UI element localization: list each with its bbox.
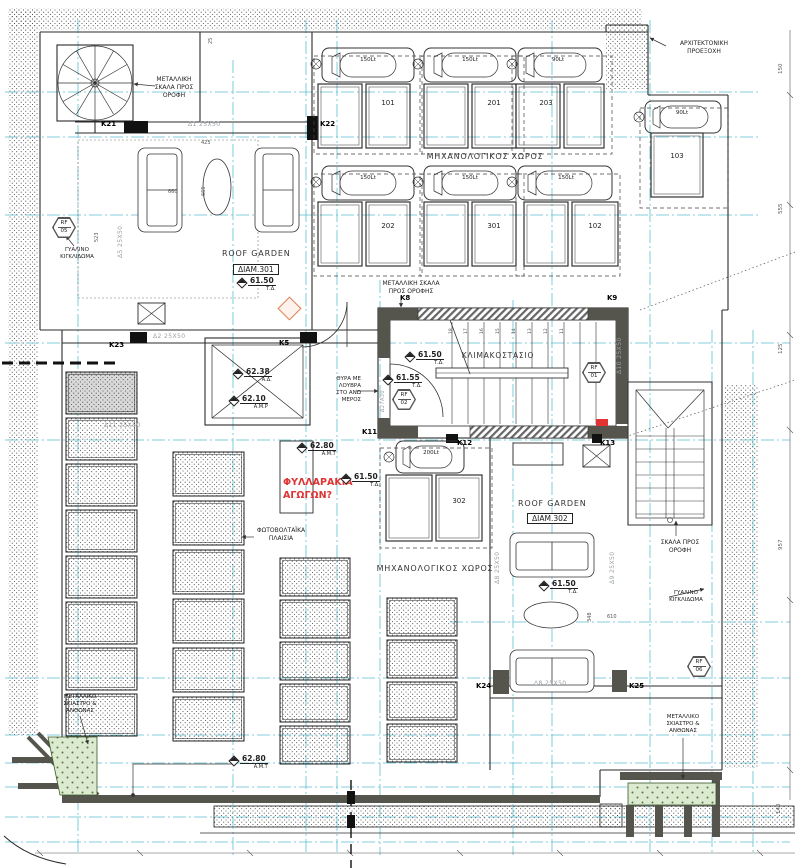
shade-planter-left-note: ΜΕΤΑΛΛΙΚΟ ΣΚΙΑΣΤΡΟ & ΑΝΘΩΝΑΣ [54, 694, 106, 715]
beam-d27: Δ27Α30 [380, 390, 386, 412]
dim-523: 523 [94, 232, 100, 242]
metal-stair-mid-note: ΜΕΤΑΛΛΙΚΗ ΣΚΑΛΑ ΠΡΟΣ ΟΡΟΦΗΣ [378, 280, 444, 296]
panel-101: 101 [368, 99, 408, 108]
panel-102: 102 [575, 222, 615, 231]
pv-panels-note: ΦΩΤΟΒΟΛΤΑΪΚΑ ΠΛΑΙΣΙΑ [250, 527, 312, 543]
level-icon [296, 442, 307, 453]
apartment-301-tag: ΔΙΑΜ.301 [233, 264, 279, 275]
dim-665: 665 [201, 186, 207, 196]
planters [48, 737, 716, 805]
dim-425: 425 [201, 140, 211, 146]
level-icon [404, 351, 415, 362]
dim-140: 140 [776, 804, 782, 815]
spiral-staircase [58, 46, 132, 120]
beam-d9: Δ9 25X50 [609, 552, 616, 584]
stairwell-label: ΚΛΙΜΑΚΟΣΤΑΣΙΟ [460, 351, 536, 361]
column-k5: K5 [279, 339, 289, 347]
metal-stair-note: ΜΕΤΑΛΛΙΚΗ ΣΚΑΛΑ ΠΡΟΣ ΟΡΟΦΗ [150, 76, 198, 99]
column-k11: K11 [362, 428, 377, 436]
room-mech-bottom: ΜΗΧΑΝΟΛΟΓΙΚΟΣ ΧΩΡΟΣ [360, 564, 510, 574]
column-k9: K9 [607, 294, 617, 302]
level-icon [228, 755, 239, 766]
tread-number: 14 [512, 328, 517, 334]
dim-125: 125 [778, 344, 784, 355]
dim-348: 348 [587, 612, 593, 622]
tread-number: 15 [496, 328, 501, 334]
panel-201: 201 [474, 99, 514, 108]
beam-d2: Δ2 25X50 [153, 333, 185, 340]
tread-number: 18 [449, 328, 454, 334]
elevation-62-80-duct: 62.80Α.Μ.Τ [298, 441, 336, 457]
tank-150lt-202: 150Lt [348, 175, 388, 182]
shade-planter-right-note: ΜΕΤΑΛΛΙΚΟ ΣΚΙΑΣΤΡΟ & ΑΝΘΩΝΑΣ [657, 714, 709, 735]
panel-103: 103 [657, 152, 697, 161]
dim-555: 555 [778, 204, 784, 215]
tank-150lt-201: 150Lt [450, 57, 490, 64]
level-icon [232, 368, 243, 379]
roof-garden-301-label: ROOF GARDEN [222, 249, 284, 259]
elevation-61-50-garden301: 61.50Τ.Δ. [238, 276, 276, 292]
elevation-62-10-skylight: 62.10Α.Μ.Ρ [230, 394, 268, 410]
tread-number: 13 [528, 328, 533, 334]
elevation-61-50-stairwell: 61.50Τ.Δ. [406, 350, 444, 366]
level-icon [382, 374, 393, 385]
panel-203: 203 [526, 99, 566, 108]
dim-25: 25 [208, 38, 214, 44]
level-icon [236, 277, 247, 288]
column-k21: K21 [101, 120, 116, 128]
dim-150: 150 [778, 64, 784, 75]
tank-150lt-101: 150Lt [348, 57, 388, 64]
tank-150lt-301: 150Lt [450, 175, 490, 182]
plan-linework [0, 0, 797, 868]
level-icon [228, 395, 239, 406]
elevation-61-50-garden302: 61.50Τ.Δ. [540, 579, 578, 595]
beam-d10: Δ10 25X50 [616, 337, 623, 374]
tread-number: 17 [464, 328, 469, 334]
roof-plan-drawing: ΜΕΤΑΛΛΙΚΗ ΣΚΑΛΑ ΠΡΟΣ ΟΡΟΦΗ K21 Δ1 25X50 … [0, 0, 797, 868]
external-metal-stair [628, 382, 712, 525]
stair-to-roof-note: ΣΚΑΛΑ ΠΡΟΣ ΟΡΟΦΗ [653, 539, 707, 555]
dim-957: 957 [778, 540, 784, 551]
dim-610: 610 [607, 614, 617, 620]
panel-302: 302 [439, 497, 479, 506]
beam-d1: Δ1 25X50 [188, 121, 220, 128]
tank-90lt-203: 90Lt [538, 57, 578, 64]
panel-301: 301 [474, 222, 514, 231]
tread-number: 16 [480, 328, 485, 334]
glass-railing-left-note: ΓΥΑΛΙΝΟ ΚΙΓΚΛΙΔΩΜΑ [54, 247, 100, 261]
arch-projection-note: ΑΡΧΙΤΕΚΤΟΝΙΚΗ ΠΡΟΕΞΟΧΗ [664, 40, 744, 56]
room-mech-top: ΜΗΧΑΝΟΛΟΓΙΚΟΣ ΧΩΡΟΣ [410, 152, 560, 162]
level-icon [340, 473, 351, 484]
beam-d5: Δ5 25X50 [117, 226, 124, 258]
stairwell-treads [390, 320, 596, 424]
column-k8: K8 [400, 294, 410, 302]
tread-number: 12 [544, 328, 549, 334]
column-k25: K25 [629, 682, 644, 690]
elevation-62-38-skylight: 62.38Α.Δ. [234, 367, 272, 383]
tank-200lt-302: 200Lt [411, 450, 451, 457]
tank-150lt-102: 150Lt [546, 175, 586, 182]
column-k12: K12 [457, 439, 472, 447]
column-k13: K13 [600, 439, 615, 447]
roof-garden-302-label: ROOF GARDEN [518, 499, 582, 509]
elevation-61-55-stairwell: 61.55Τ.Δ. [384, 373, 422, 389]
beam-d11: Δ11 25X50 [104, 422, 141, 429]
dim-660: 660 [168, 189, 178, 195]
panel-202: 202 [368, 222, 408, 231]
tread-number: 11 [560, 328, 565, 334]
glass-railing-right-note: ΓΥΑΛΙΝΟ ΚΙΓΚΛΙΔΩΜΑ [662, 590, 710, 604]
column-k24: K24 [476, 682, 491, 690]
apartment-302-tag: ΔΙΑΜ.302 [527, 513, 573, 524]
column-k23: K23 [109, 341, 124, 349]
louver-door-note: ΘΥΡΑ ΜΕ ΛΟΥΒΡΑ ΣΤΟ ΑΝΩ ΜΕΡΟΣ [325, 376, 361, 405]
level-icon [538, 580, 549, 591]
elevation-62-80-bottom: 62.80Α.Μ.Τ [230, 754, 268, 770]
tank-90lt-103: 90Lt [662, 110, 702, 117]
beam-d8-left: Δ8 25X50 [494, 552, 501, 584]
red-marker [596, 419, 608, 426]
beam-d8-bottom: Δ8 25X50 [534, 680, 566, 687]
column-k22: K22 [320, 120, 335, 128]
elevation-61-50-mid: 61.50Τ.Δ. [342, 472, 380, 488]
